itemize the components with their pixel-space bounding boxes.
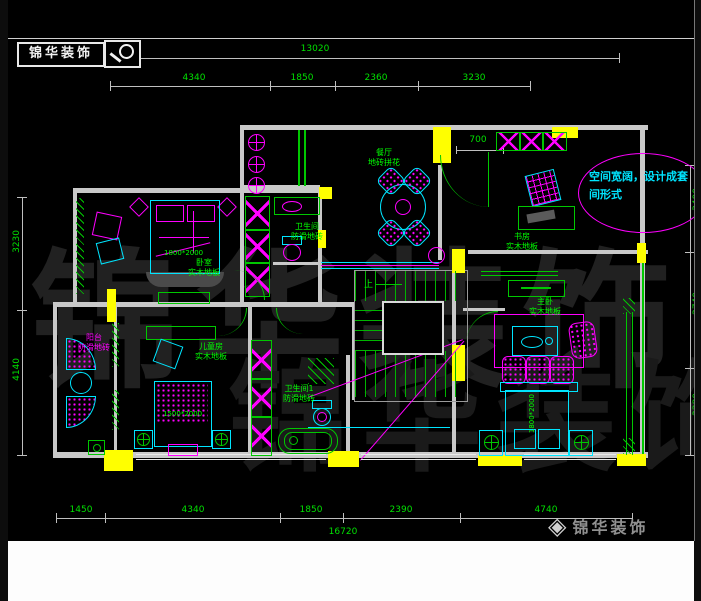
room-label-bedroom: 卧室 实木地板 [188, 258, 220, 278]
kitchen-counter-line [298, 130, 300, 186]
dim-bottom-1: 1450 [41, 505, 121, 515]
kitchen-counter-line [304, 130, 306, 186]
balcony-zigzag-1 [112, 323, 119, 367]
column-center-1 [452, 249, 465, 273]
room-name: 卧室 [188, 258, 220, 268]
column-right-wall [637, 243, 646, 263]
room-floor: 防滑地砖 [283, 394, 315, 404]
tv-cabinet-bedroom [158, 292, 210, 304]
room-name: 主卧 [529, 297, 561, 307]
sofa-cushion [550, 356, 574, 384]
column-bottom-center [328, 451, 359, 467]
study-wardrobe-box [542, 132, 567, 151]
dim-right-2: 2740 [692, 292, 695, 315]
room-name: 阳台 [78, 333, 110, 343]
note-line-1: 空间宽阔，设计成套 [589, 170, 688, 183]
bed-master [505, 390, 569, 456]
stair-treads-left [355, 301, 382, 351]
wash-basin [282, 201, 302, 212]
dim-line-top-total [110, 58, 620, 59]
room-floor: 实木地板 [195, 352, 227, 362]
dim-top-4: 3230 [434, 73, 514, 83]
note-text: 空间宽阔，设计成套 间形式 [589, 168, 695, 203]
brand-footer: ◈ 锦华装饰 [548, 514, 648, 538]
dim-bottom-total: 16720 [303, 527, 383, 537]
closet-zigzag-top [623, 298, 635, 314]
wall-study-bottom [468, 250, 648, 254]
master-closet-line [626, 312, 627, 455]
nightstand-target [574, 435, 589, 450]
room-name: 儿童房 [195, 342, 227, 352]
kids-wardrobe-box [251, 340, 272, 380]
room-name: 卫生间 [291, 222, 323, 232]
door-arc-entry [440, 155, 489, 207]
room-floor: 实木地板 [506, 242, 538, 252]
master-desk-top [512, 326, 558, 356]
nightstand-diamond-right [217, 197, 237, 217]
stair-up-label: 上 [364, 277, 373, 290]
closet-line [481, 271, 558, 272]
floor-drain [88, 440, 105, 455]
nightstand-target [215, 433, 228, 446]
bathtub [278, 428, 338, 454]
dim-bottom-2: 4340 [153, 505, 233, 515]
room-label-kids: 儿童房 实木地板 [195, 342, 227, 362]
pillow [156, 205, 184, 222]
nightstand-diamond-left [129, 197, 149, 217]
master-closet-line [632, 312, 633, 455]
dim-top-total: 13020 [255, 44, 375, 54]
balcony-plant-2 [66, 396, 96, 428]
dim-line-left [22, 197, 23, 455]
armchair-1 [92, 212, 122, 241]
study-wardrobe-box [496, 132, 521, 151]
sofa-cushion [526, 356, 550, 384]
wall-master-top [463, 308, 505, 311]
app-logo[interactable]: 锦华装饰 [17, 42, 105, 67]
bed-drawer [538, 429, 560, 449]
closet-cabinet [508, 280, 565, 297]
pillow [187, 205, 215, 222]
room-label-study: 书房 实木地板 [506, 232, 538, 252]
column-dining-left [319, 187, 332, 199]
room-label-bath-mid: 卫生间 防滑地砖 [291, 222, 323, 242]
dim-top-3: 2360 [336, 73, 416, 83]
dim-top-1: 4340 [154, 73, 234, 83]
dim-left-2: 4140 [12, 358, 22, 381]
column-balcony [107, 289, 116, 322]
stove-burner [248, 156, 265, 173]
page-margin [8, 541, 694, 601]
toilet-bowl [283, 244, 301, 261]
search-icon [106, 42, 139, 66]
wall-bath-mid-bottom [273, 262, 322, 265]
room-label-bath1: 卫生间1 防滑地砖 [283, 384, 315, 404]
balcony-zigzag-2 [112, 390, 119, 430]
room-floor: 实木地板 [188, 268, 220, 278]
window-bottom-2 [361, 454, 476, 460]
room-floor: 防滑地砖 [78, 343, 110, 353]
room-name: 书房 [506, 232, 538, 242]
dining-table-center [395, 199, 411, 215]
dim-line-bottom [56, 518, 633, 519]
room-name: 卫生间1 [283, 384, 315, 394]
wall-left-lower [53, 302, 57, 458]
kids-wardrobe-box [251, 378, 272, 418]
nightstand-target [137, 433, 150, 446]
bed-master-size: 1800*2000 [528, 394, 536, 433]
app-window: 锦华装饰 锦华装饰 13020 4340 1850 2360 3230 1450… [0, 0, 701, 601]
bed-main-size: 1800*2000 [164, 249, 203, 257]
closet-zigzag-bottom [623, 438, 635, 454]
room-label-dining: 餐厅 地砖拼花 [368, 148, 400, 168]
stair-core [382, 301, 444, 355]
wardrobe-box [245, 196, 270, 231]
dim-bottom-3: 1850 [271, 505, 351, 515]
desk-dot [545, 337, 553, 345]
drawing-canvas[interactable]: 锦华装饰 锦华装饰 13020 4340 1850 2360 3230 1450… [8, 0, 695, 541]
kids-bed-bench [168, 444, 198, 456]
room-name: 餐厅 [368, 148, 400, 158]
brand-diamond-icon: ◈ [548, 514, 566, 538]
floor-line-cyan [321, 262, 439, 263]
search-button[interactable] [104, 40, 141, 68]
kids-wardrobe-box [251, 416, 272, 456]
balcony-pot [70, 372, 92, 394]
floor-line-magenta [321, 265, 439, 266]
shower-corner [308, 358, 334, 384]
room-floor: 实木地板 [529, 307, 561, 317]
wall-right-green-line [642, 255, 644, 455]
stove-burner [248, 177, 265, 194]
door-stop [428, 247, 445, 264]
brand-footer-text: 锦华装饰 [572, 514, 648, 538]
nightstand-target [484, 435, 499, 450]
dim-entry: 700 [458, 135, 498, 145]
stair-up-arrow [376, 284, 402, 285]
dim-line-top-segments [110, 86, 531, 87]
column-bottom-left [104, 450, 133, 471]
dim-bottom-4: 2390 [361, 505, 441, 515]
curtain-zigzag [76, 198, 84, 294]
floor-line-cyan [321, 268, 439, 269]
dim-left-1: 3230 [12, 230, 22, 253]
room-label-balcony: 阳台 防滑地砖 [78, 333, 110, 353]
dim-top-2: 1850 [262, 73, 342, 83]
room-floor: 地砖拼花 [368, 158, 400, 168]
desk-item [526, 210, 555, 224]
study-wardrobe-box [519, 132, 544, 151]
sofa-cushion [502, 356, 526, 384]
wardrobe-box [245, 229, 270, 264]
kids-desk [146, 326, 216, 340]
room-floor: 防滑地砖 [291, 232, 323, 242]
toilet1-bowl [313, 408, 331, 426]
dim-right-3: 2280 [692, 393, 695, 416]
wall-dining-right [438, 165, 442, 260]
stove-burner [248, 134, 265, 151]
closet-line [481, 275, 558, 276]
study-chair-grid [525, 169, 562, 207]
room-label-master: 主卧 实木地板 [529, 297, 561, 317]
column-bottom-right-2 [617, 454, 646, 466]
wall-bath1-right [346, 355, 350, 455]
bed-kids-size: 1500*2000 [163, 410, 202, 418]
study-desk [518, 206, 575, 230]
note-line-2: 间形式 [589, 188, 622, 201]
master-chair [568, 320, 599, 359]
desk-oval [521, 336, 543, 348]
column-bottom-right-1 [478, 455, 522, 466]
window-bottom-1 [136, 454, 326, 460]
frame-top-line [8, 38, 694, 39]
